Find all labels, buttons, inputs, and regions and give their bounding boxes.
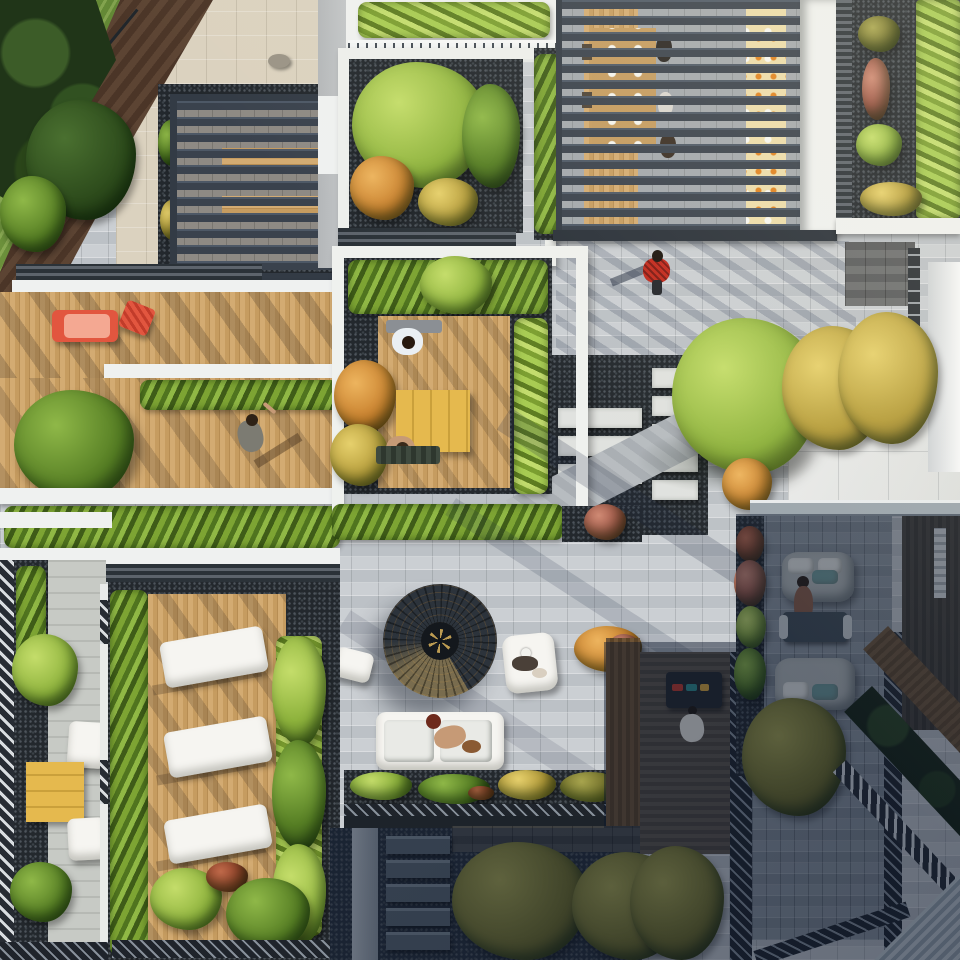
grey-coffee-table — [783, 612, 847, 642]
fire-pit-plant — [428, 629, 452, 653]
lounge-hedge-lump-1 — [272, 636, 326, 746]
green-roof-parapet — [836, 218, 960, 234]
terrace-shrub-orange — [334, 360, 396, 432]
right-border-plant-1 — [736, 526, 764, 562]
terrace-hedge-right — [514, 318, 548, 494]
woman-sofa-hair — [426, 714, 441, 729]
lounge-hedge-left — [110, 590, 148, 956]
walker-red-legs — [652, 280, 662, 295]
planter-shrub-orange — [350, 156, 414, 220]
plaza-strip-red-accent — [468, 786, 494, 800]
balcony-parapet-top — [0, 512, 112, 528]
walker-red-head — [652, 250, 663, 262]
rooftop-aerial-scene — [0, 0, 960, 960]
stair-tread — [386, 860, 450, 878]
pergola-b-south-edge — [553, 230, 837, 241]
terrace-top-shrub — [420, 256, 492, 314]
coffee-table-leg-1 — [779, 615, 788, 639]
rock-1 — [268, 54, 290, 68]
right-border-plant-4 — [734, 648, 766, 700]
hedge-row-b2 — [140, 380, 344, 410]
balcony-bottom-band — [0, 942, 112, 960]
stair-tread — [386, 908, 450, 926]
right-border-plant-2 — [734, 560, 766, 606]
planter-shrub-right — [462, 84, 520, 188]
lounge-bottom-louvre — [112, 940, 340, 958]
bbq-food-yellow — [700, 684, 709, 691]
stair-tread — [386, 884, 450, 902]
plaza-strip-shrub-3 — [498, 770, 556, 800]
green-roof-louvre-strip — [836, 0, 852, 224]
plaza-deck-band — [606, 638, 640, 852]
pergola-b-white-beam — [800, 0, 836, 236]
lounge-hedge-lump-2 — [272, 740, 326, 850]
grey-sofa-2-cushion-teal — [812, 684, 838, 700]
white-parapet-b — [104, 364, 344, 379]
stair-tread — [386, 932, 450, 950]
tree-canopy-corner-2 — [0, 176, 66, 252]
walker-deck-head — [246, 414, 258, 426]
stair-tread — [386, 836, 450, 854]
upper-terrace-greenery — [358, 2, 550, 38]
balcony-bush-bottom — [10, 862, 72, 922]
right-brick-band — [845, 242, 915, 306]
green-roof-shrub-1 — [858, 16, 900, 52]
grey-sofa-1-cushion-teal — [812, 570, 838, 584]
red-lounger-cushion — [64, 314, 110, 338]
armchair-dog — [532, 668, 547, 678]
balcony-yellow-table — [26, 762, 84, 822]
white-sofa-cushion-1 — [384, 720, 434, 762]
pergola-b-slats — [556, 0, 816, 236]
autumn-tree-right-column — [838, 312, 938, 444]
right-terrace-parapet — [750, 500, 960, 516]
diner-white-shirt-head — [402, 336, 415, 349]
grey-sofa-1-cushion-1 — [788, 558, 814, 574]
plaza-strip-shrub-1 — [350, 772, 412, 800]
bbq-food-teal — [686, 684, 697, 691]
lower-garden-wall — [352, 828, 378, 960]
parapet-louvre-a — [16, 264, 262, 280]
bbq-corner-tree — [630, 846, 724, 960]
right-border-plant-3 — [736, 606, 766, 648]
right-terrace-tree — [742, 698, 846, 816]
terrace-pergola-edge — [338, 228, 516, 246]
right-edge-light-wall — [934, 528, 946, 598]
balcony-bush-top — [12, 634, 78, 706]
terrace-bench-bottom — [376, 446, 440, 464]
green-roof-sedum-mat — [916, 0, 960, 218]
sofa-dog — [462, 740, 481, 753]
green-roof-shrub-3 — [860, 182, 922, 216]
lower-garden-tree-1 — [452, 842, 588, 960]
tree-left-deck — [14, 390, 134, 500]
plaza-edge-hatch — [344, 804, 644, 816]
green-roof-grasses — [862, 58, 890, 120]
white-parapet-c — [0, 488, 344, 504]
bbq-food-red — [672, 684, 683, 691]
planter-shrub-yellow — [418, 178, 478, 226]
green-roof-shrub-2 — [856, 124, 902, 166]
coffee-table-leg-2 — [843, 615, 852, 639]
